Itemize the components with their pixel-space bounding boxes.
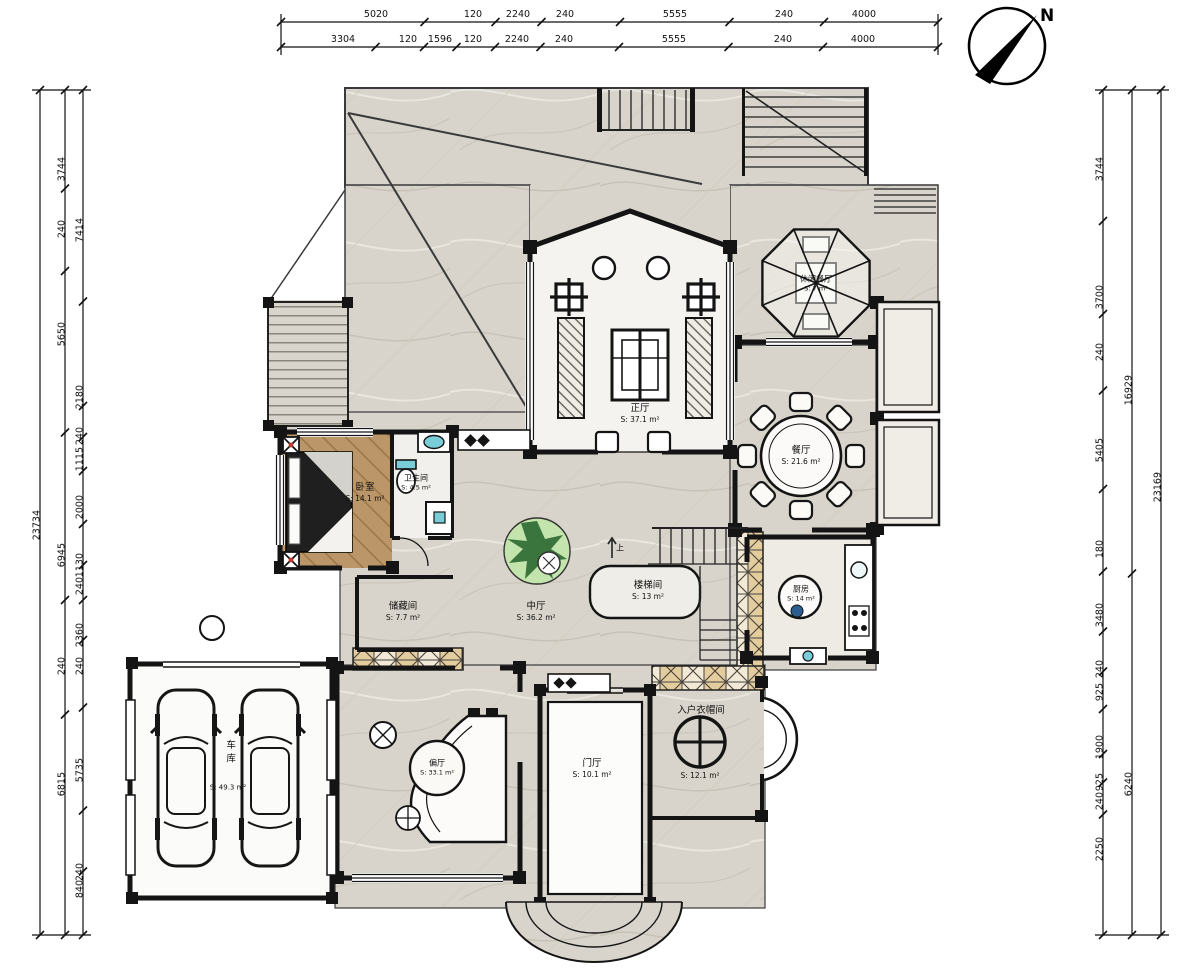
compass-icon	[969, 8, 1045, 84]
dimension-label: 1596	[428, 34, 452, 45]
bench-icon	[686, 318, 712, 418]
dimension-label: 5650	[57, 322, 68, 346]
room-area: S: 10.1 m²	[572, 770, 611, 780]
room-area: S: 21.6 m²	[781, 457, 820, 467]
kitchen-accent-dot	[791, 605, 803, 617]
dimension-label: 4000	[851, 34, 875, 45]
entry-fan-steps	[506, 902, 682, 962]
room-name: 餐厅	[781, 445, 820, 457]
room-label-leisure-dining: 休闲餐厅 S: 7 m²	[800, 275, 832, 294]
chair-icon	[596, 432, 618, 452]
side-hall-bottom-window	[352, 873, 503, 883]
dimension-label: 240	[57, 220, 68, 238]
dimension-label: 120	[399, 34, 417, 45]
dimension-label: 6945	[57, 543, 68, 567]
dimension-label: 240	[774, 34, 792, 45]
room-name: 卧室	[345, 482, 384, 494]
car-icon	[235, 690, 305, 866]
dimension-label: 240	[75, 657, 86, 675]
double-door-icon	[548, 674, 610, 692]
room-label-dining: 餐厅 S: 21.6 m²	[781, 445, 820, 467]
room-name: 正厅	[620, 403, 659, 415]
room-label-bathroom: 卫生间 S: 4.5 m²	[401, 474, 431, 493]
dimension-label: 2240	[506, 9, 530, 20]
dining-top-window	[766, 337, 852, 347]
dimension-label: 3744	[57, 157, 68, 181]
room-label-garage-name: 车库	[223, 740, 235, 767]
dimension-label: 240	[775, 9, 793, 20]
dimension-label: 240	[57, 657, 68, 675]
dimension-label: 240	[1095, 792, 1106, 810]
foyer-rug	[548, 702, 642, 894]
room-name: 门厅	[572, 758, 611, 770]
dimension-label: 2000	[75, 495, 86, 519]
dimension-label: 180	[1095, 540, 1106, 558]
room-label-kitchen: 厨房 S: 14 m²	[787, 585, 815, 604]
room-name: 休闲餐厅	[800, 275, 832, 285]
room-name: 中厅	[516, 601, 555, 613]
dimension-label: 240	[1095, 660, 1106, 678]
room-label-side-hall: 偏厅 S: 33.1 m²	[420, 759, 454, 778]
car-icon	[151, 690, 221, 866]
dimension-label: 240	[75, 863, 86, 881]
dimension-label: 2240	[505, 34, 529, 45]
column-circle	[647, 257, 669, 279]
dimension-label: 240	[555, 34, 573, 45]
bed-icon	[286, 452, 352, 552]
dimension-label: 3744	[1095, 157, 1106, 181]
dimension-label: 23169	[1153, 472, 1164, 502]
dimension-label: 240	[556, 9, 574, 20]
room-area: S: 13 m²	[632, 592, 664, 602]
room-label-foyer: 门厅 S: 10.1 m²	[572, 758, 611, 780]
room-name: 储藏间	[386, 601, 420, 613]
room-label-cloakroom-name: 入户衣帽间	[677, 705, 725, 717]
room-area: S: 7 m²	[800, 285, 832, 293]
dimension-label: 6815	[57, 772, 68, 796]
dimension-label: 5555	[663, 9, 687, 20]
room-area: S: 14.1 m²	[345, 494, 384, 504]
entry-arch	[764, 698, 797, 780]
ornate-column	[550, 278, 588, 316]
dimension-label: 1115	[75, 447, 86, 471]
room-name: 偏厅	[420, 759, 454, 769]
bay-windows	[877, 302, 939, 525]
plant-icon	[504, 518, 570, 584]
dimension-label: 4000	[852, 9, 876, 20]
dimension-label: 5405	[1095, 438, 1106, 462]
room-name: 卫生间	[401, 474, 431, 484]
room-label-garage-area: S: 49.3 m²	[210, 783, 246, 792]
room-label-main-hall: 正厅 S: 37.1 m²	[620, 403, 659, 425]
room-area: S: 4.5 m²	[401, 484, 431, 492]
dimension-label: 3700	[1095, 285, 1106, 309]
dimension-label: 3480	[1095, 603, 1106, 627]
dimension-label: 1900	[1095, 735, 1106, 759]
dimension-label: 925	[1095, 773, 1106, 791]
bench-icon	[558, 318, 584, 418]
dimension-label: 2250	[1095, 837, 1106, 861]
shower-icon	[426, 502, 452, 534]
dimension-label: 240	[75, 577, 86, 595]
fireplace-icon	[612, 330, 668, 400]
dimension-label: 120	[464, 9, 482, 20]
dimension-label: 840	[75, 880, 86, 898]
dimension-label: 16929	[1124, 375, 1135, 405]
room-label-storage: 储藏间 S: 7.7 m²	[386, 601, 420, 623]
dimension-label: 2180	[75, 385, 86, 409]
floor-plan-canvas: N 正厅 S: 37.1 m² 餐厅 S: 21.6 m² 卧室 S: 14.1…	[0, 0, 1200, 968]
dimension-label: 3304	[331, 34, 355, 45]
dimension-label: 1130	[75, 553, 86, 577]
kitchen-sink-icon	[851, 562, 867, 578]
double-door-icon	[458, 430, 530, 450]
dimension-label: 6240	[1124, 772, 1135, 796]
column-circle	[593, 257, 615, 279]
room-area: S: 33.1 m²	[420, 769, 454, 777]
dimension-label: 120	[464, 34, 482, 45]
dimension-label: 7414	[75, 218, 86, 242]
dimension-label: 240	[1095, 343, 1106, 361]
room-area: S: 36.2 m²	[516, 613, 555, 623]
left-balcony	[263, 297, 353, 431]
dimension-label: 240	[75, 427, 86, 445]
room-area: S: 14 m²	[787, 595, 815, 603]
dimension-label: 5735	[75, 758, 86, 782]
dimension-label: 5555	[662, 34, 686, 45]
ornate-column	[682, 278, 720, 316]
room-area: S: 37.1 m²	[620, 415, 659, 425]
room-area: S: 7.7 m²	[386, 613, 420, 623]
dimension-label: 23734	[32, 510, 43, 540]
stair-up-label: 上	[616, 543, 624, 554]
landscape-circle	[200, 616, 224, 640]
compass-north-label: N	[1040, 6, 1054, 26]
chair-icon	[648, 432, 670, 452]
room-name: 楼梯间	[632, 580, 664, 592]
room-label-stairwell: 楼梯间 S: 13 m²	[632, 580, 664, 602]
room-label-cloakroom-area: S: 12.1 m²	[680, 771, 719, 781]
room-label-mid-hall: 中厅 S: 36.2 m²	[516, 601, 555, 623]
dimension-label: 5020	[364, 9, 388, 20]
room-label-bedroom: 卧室 S: 14.1 m²	[345, 482, 384, 504]
dimension-label: 2360	[75, 623, 86, 647]
floor-plan-drawing	[0, 0, 1200, 968]
room-name: 厨房	[787, 585, 815, 595]
dimension-label: 925	[1095, 683, 1106, 701]
